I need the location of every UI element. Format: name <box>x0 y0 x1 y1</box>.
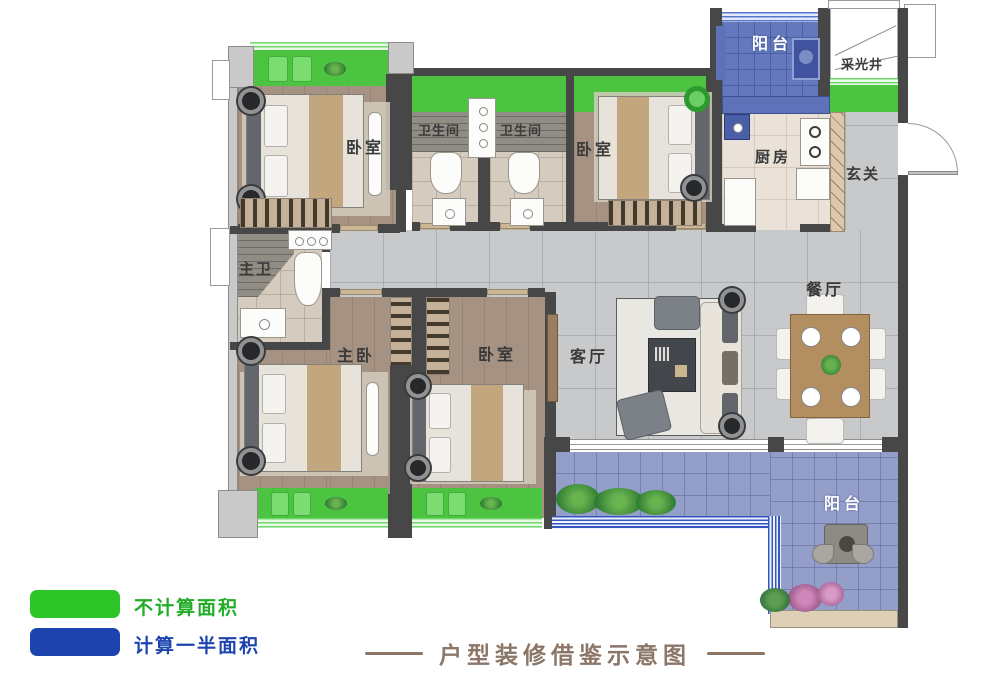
flowers <box>788 584 822 612</box>
bench <box>366 382 379 456</box>
kitchen-counter <box>722 96 830 114</box>
toilet <box>508 152 540 194</box>
cushion <box>292 56 312 82</box>
legend-label-not-counted: 不计算面积 <box>134 593 239 620</box>
green-strip <box>412 488 542 518</box>
page-title: 户型装修借鉴示意图 <box>439 636 691 670</box>
entry-door-arc <box>908 123 958 173</box>
sink <box>240 308 286 338</box>
legend: 不计算面积 计算一半面积 <box>30 590 330 658</box>
wall <box>322 288 330 350</box>
window-band <box>830 78 898 85</box>
closet <box>240 198 332 228</box>
entry-door-leaf <box>908 171 958 175</box>
legend-label-half-counted: 计算一半面积 <box>134 631 260 658</box>
armchair <box>654 296 700 330</box>
label-bathroom-right: 卫生间 <box>500 120 542 139</box>
bedside-lamp <box>238 88 264 114</box>
label-bathroom-left: 卫生间 <box>418 120 460 139</box>
label-dining-room: 餐厅 <box>806 276 844 300</box>
wall <box>388 42 414 74</box>
green-strip <box>255 488 388 518</box>
plant <box>480 497 502 510</box>
balcony-counter <box>716 26 726 80</box>
wall <box>378 224 400 233</box>
dining-table <box>790 314 870 418</box>
patio-chair <box>812 544 834 564</box>
cushion <box>271 492 289 516</box>
label-balcony-bottom: 阳台 <box>824 490 864 514</box>
light-well-line <box>835 25 897 56</box>
plant <box>325 497 347 510</box>
window-band <box>570 439 666 450</box>
bedside-lamp <box>406 374 430 398</box>
wall <box>400 68 722 76</box>
kitchen-counter <box>796 168 830 200</box>
fridge <box>724 178 756 226</box>
plan-title: 户型装修借鉴示意图 <box>340 636 790 670</box>
ac-ledge <box>210 228 230 286</box>
label-living-room: 客厅 <box>570 343 608 367</box>
ledge <box>828 0 900 9</box>
label-kitchen: 厨房 <box>755 146 791 167</box>
window-band <box>722 12 818 22</box>
title-dash-left <box>365 652 423 655</box>
wall <box>412 292 426 376</box>
washing-machine <box>792 38 820 80</box>
title-dash-right <box>707 652 765 655</box>
wall <box>898 445 908 628</box>
wall <box>800 224 830 232</box>
cushion <box>293 492 311 516</box>
cushion <box>268 56 288 82</box>
dining-chair <box>806 418 844 444</box>
label-bedroom-top-middle: 卧室 <box>576 136 614 160</box>
door-leaf <box>487 289 528 295</box>
cushion <box>426 492 444 516</box>
ac-ledge <box>904 4 936 58</box>
coffee-table <box>648 338 696 392</box>
label-master-bedroom: 主卧 <box>337 342 375 366</box>
floor-lamp <box>720 288 744 312</box>
window-band <box>412 518 542 528</box>
legend-item-half-counted: 计算一半面积 <box>30 628 330 658</box>
toilet <box>294 252 322 306</box>
flowers <box>818 582 844 606</box>
label-bedroom-bottom: 卧室 <box>478 341 516 365</box>
vanity <box>288 230 332 250</box>
plant <box>324 62 346 76</box>
bedside-lamp <box>406 456 430 480</box>
patio-chair <box>852 544 874 564</box>
wall <box>898 8 908 123</box>
floor-plan-page: 阳台 采光井 卧室 卫生间 卫生间 卧室 厨房 玄关 主卫 餐厅 客厅 主卧 卧… <box>0 0 1000 689</box>
label-master-bathroom: 主卫 <box>239 258 273 279</box>
label-light-well: 采光井 <box>841 54 883 73</box>
door-leaf <box>340 225 378 231</box>
wall <box>544 437 570 452</box>
balcony-railing <box>552 516 770 529</box>
window-band <box>255 518 388 528</box>
toilet <box>430 152 462 194</box>
ac-ledge <box>212 60 230 100</box>
wall <box>388 494 412 538</box>
closet <box>390 297 412 367</box>
flowers <box>760 588 790 612</box>
bedside-lamp <box>238 338 264 364</box>
legend-item-not-counted: 不计算面积 <box>30 590 330 620</box>
closet <box>426 297 450 375</box>
wall <box>228 46 238 538</box>
legend-swatch-blue <box>30 628 120 656</box>
plant <box>636 490 676 515</box>
green-strip <box>252 50 388 86</box>
balcony-bottom-wall <box>770 610 898 628</box>
green-strip <box>830 85 898 112</box>
wall <box>218 490 258 538</box>
wall <box>330 288 340 297</box>
stove <box>800 118 830 166</box>
label-balcony-top: 阳台 <box>752 30 792 54</box>
wall <box>228 46 254 88</box>
pipe-shaft <box>468 98 496 158</box>
closet <box>608 200 702 226</box>
tv-cabinet <box>547 314 558 402</box>
label-bedroom-top-left: 卧室 <box>346 134 384 158</box>
sink <box>432 198 466 226</box>
foyer-cabinet <box>830 112 845 232</box>
floor-lamp <box>720 414 744 438</box>
wall <box>528 288 545 297</box>
wall <box>768 437 784 452</box>
wall <box>566 74 574 230</box>
wall <box>898 175 908 445</box>
wall <box>882 437 898 452</box>
cushion <box>448 492 466 516</box>
label-foyer: 玄关 <box>846 163 880 184</box>
sink <box>510 198 544 226</box>
kitchen-sink <box>724 114 750 140</box>
door-leaf <box>340 289 382 295</box>
window-band <box>666 439 768 450</box>
bedside-lamp <box>238 448 264 474</box>
bedside-lamp <box>682 176 706 200</box>
wall <box>412 222 420 231</box>
plant-pot <box>684 86 710 112</box>
wall <box>382 288 487 297</box>
legend-swatch-green <box>30 590 120 618</box>
